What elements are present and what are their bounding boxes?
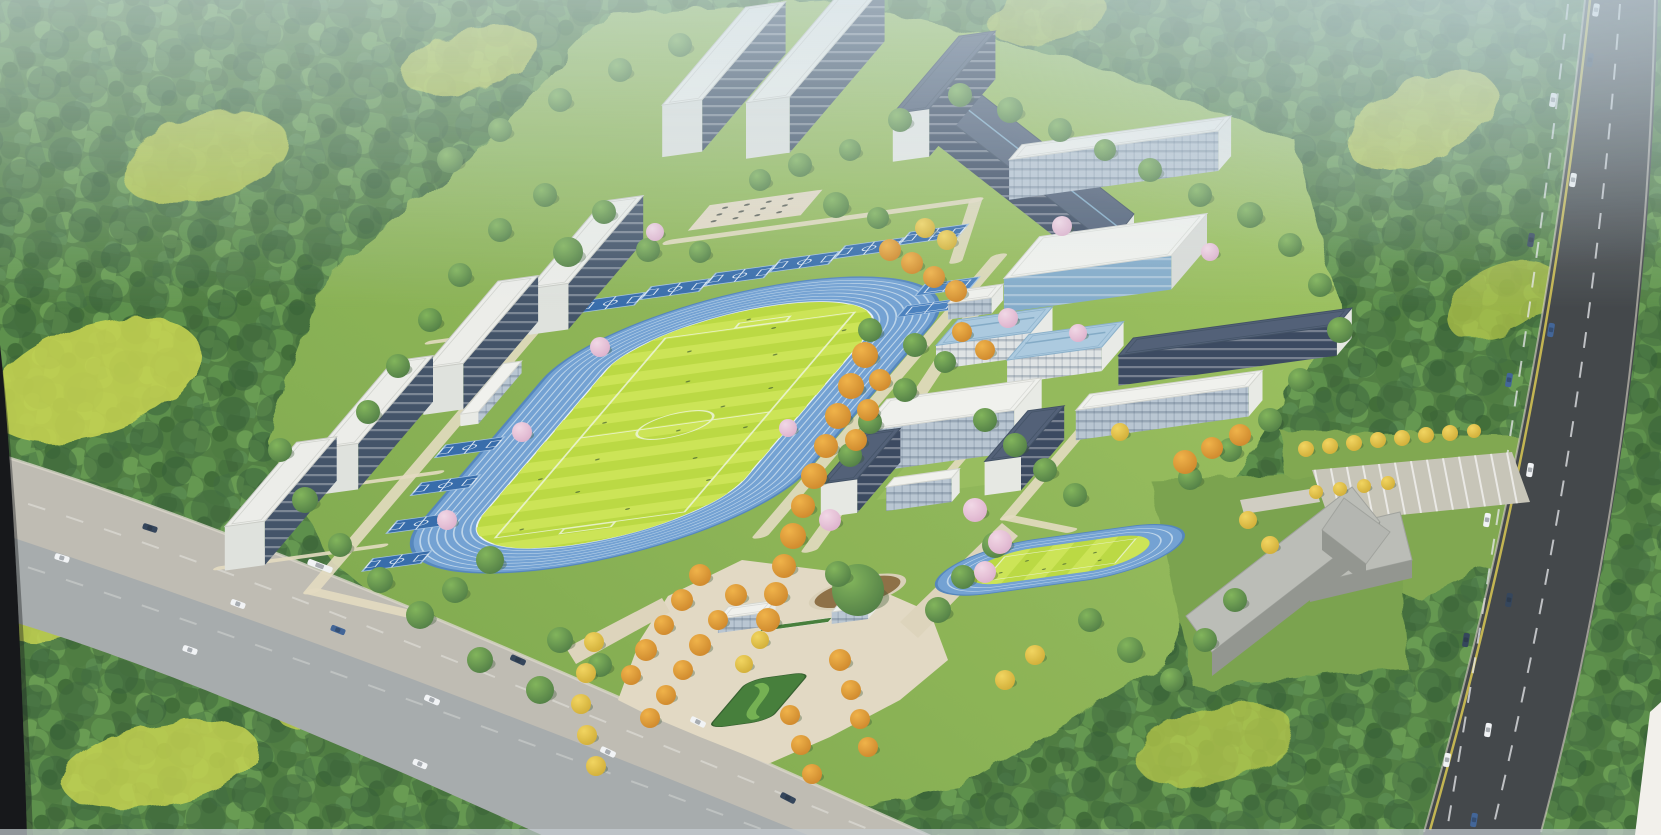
photo-color-cast — [0, 0, 1661, 835]
photo-of-campus-rendering — [0, 0, 1661, 835]
campus-aerial-scene — [0, 0, 1661, 835]
photo-bottom-edge — [0, 829, 1661, 835]
